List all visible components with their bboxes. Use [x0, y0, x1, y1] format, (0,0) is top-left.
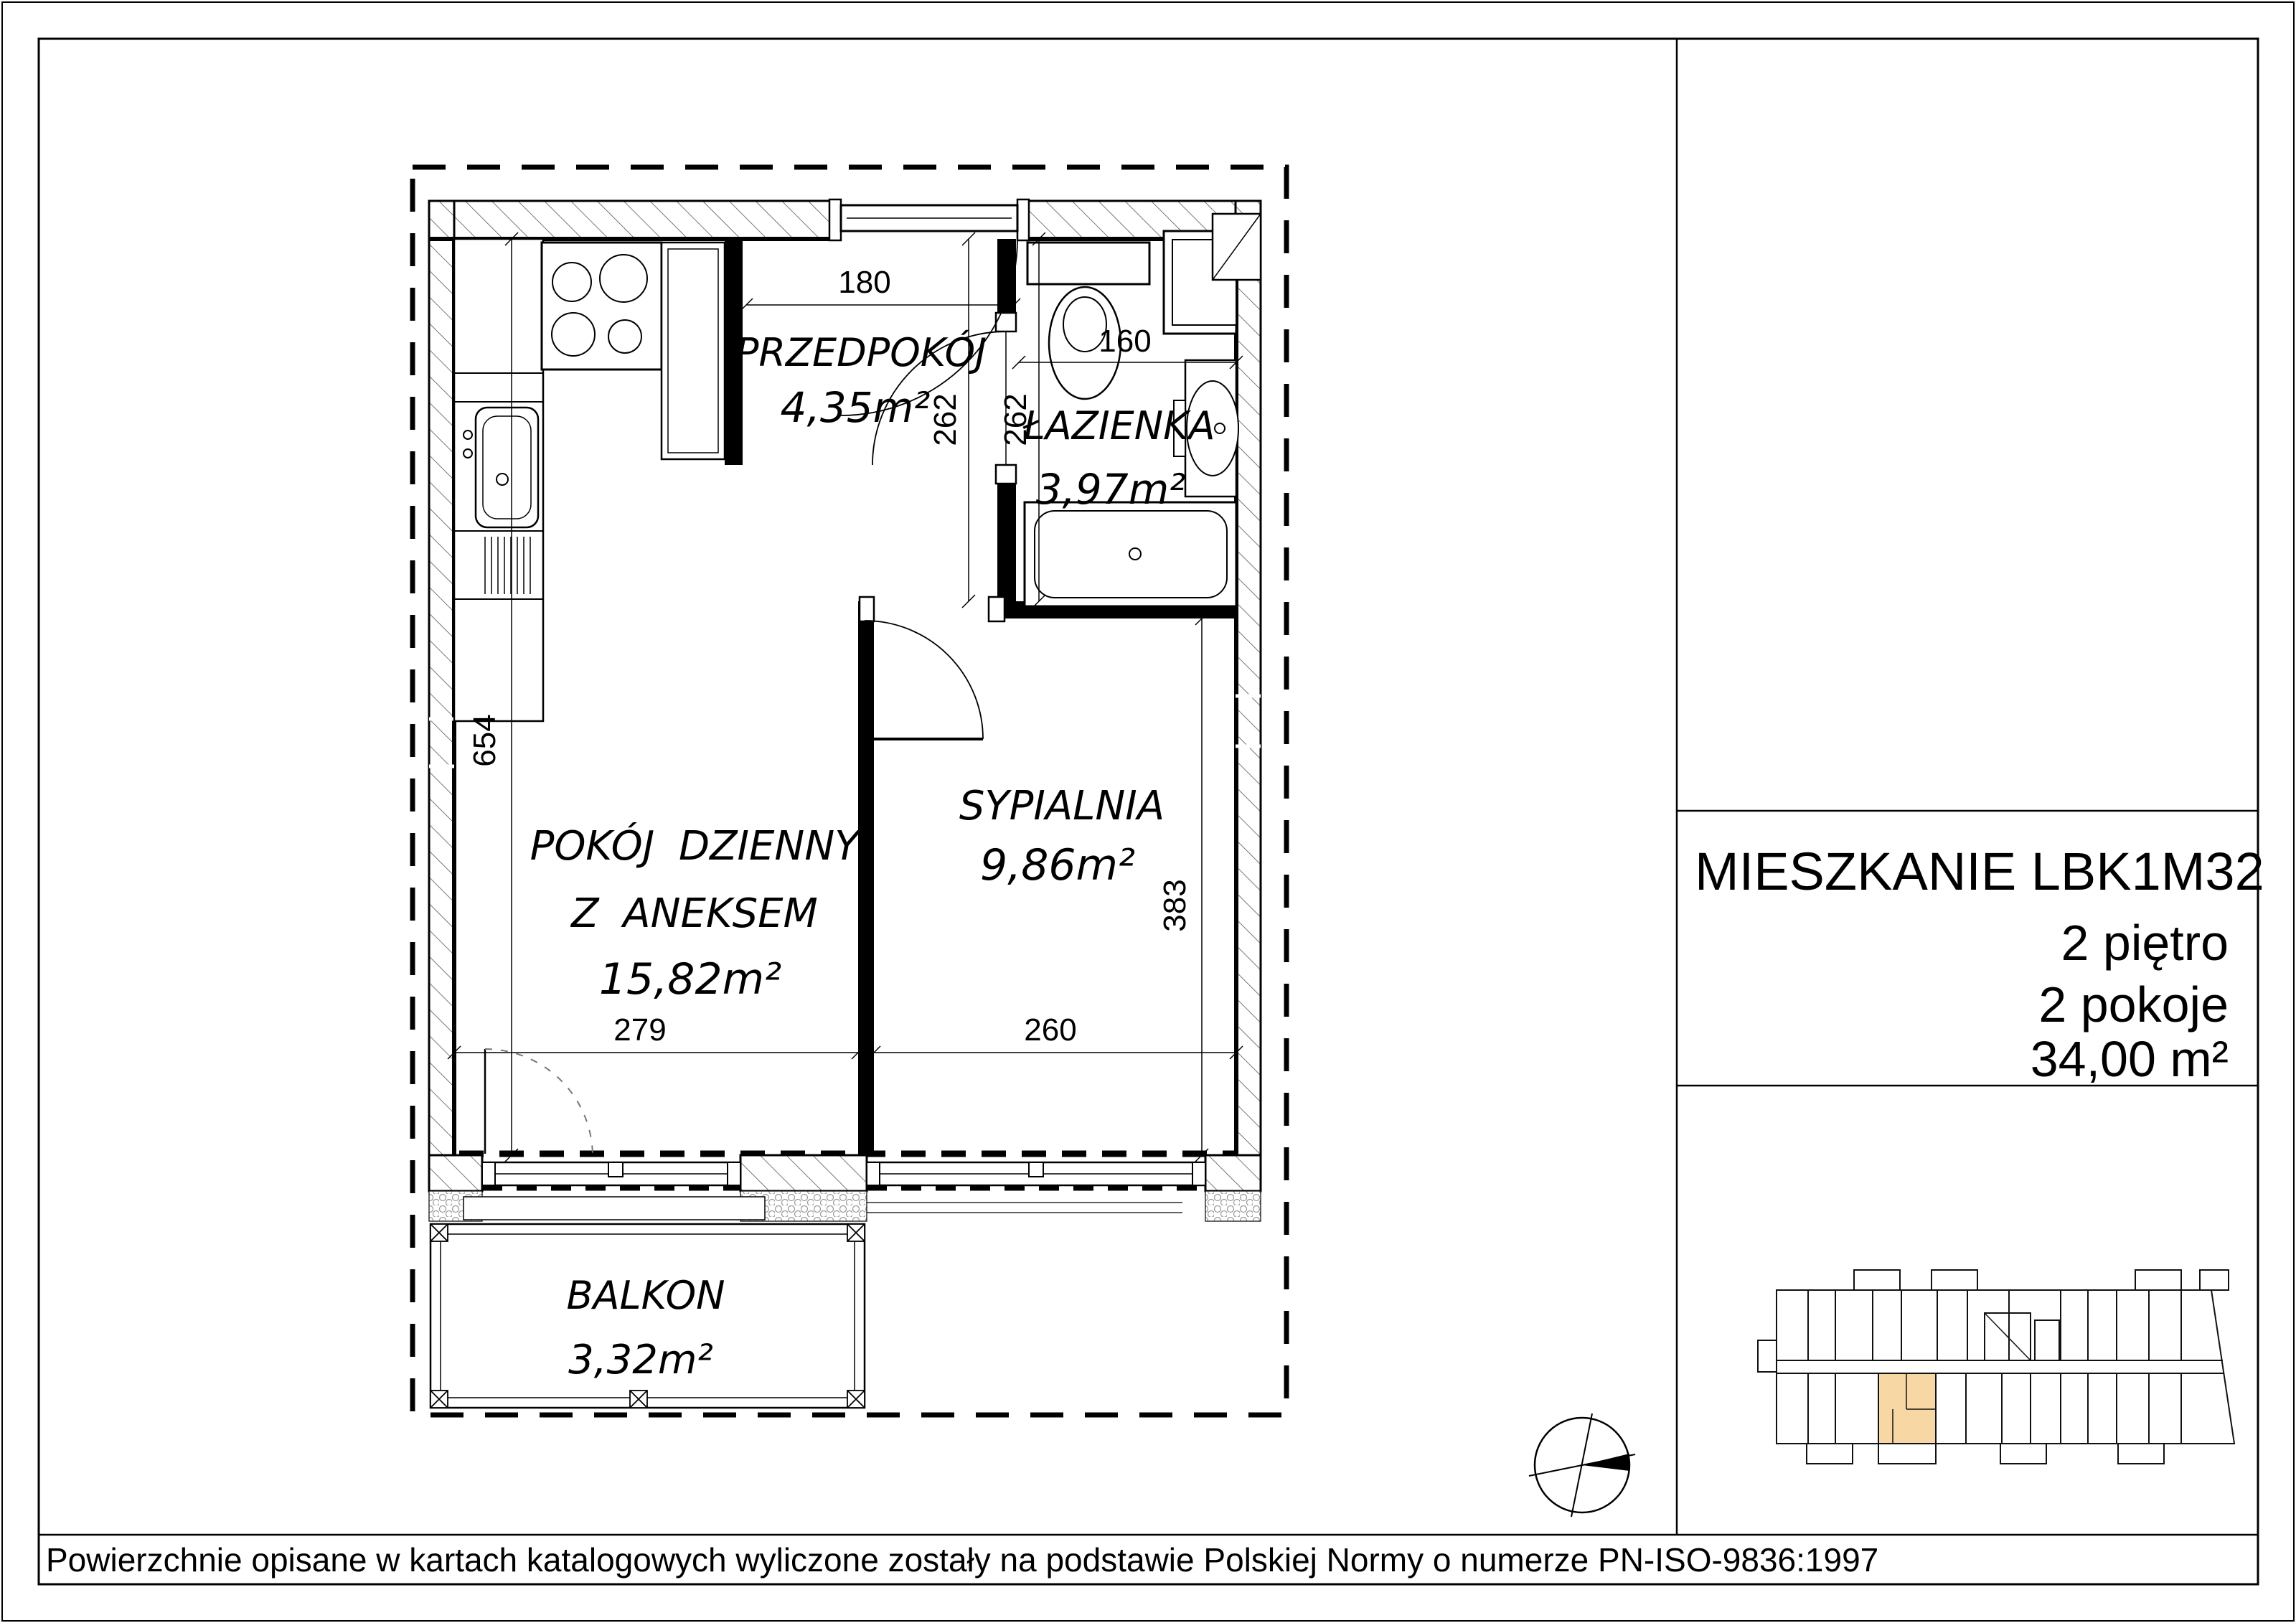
- dim-label-383: 383: [1157, 879, 1192, 931]
- apartment-rooms-count: 2 pokoje: [2038, 977, 2229, 1032]
- balcony-slab-edge: [464, 1197, 765, 1220]
- wall-bottom-pier-left: [429, 1155, 482, 1191]
- highlighted-unit: [1878, 1373, 1936, 1444]
- room-label-bedroom: SYPIALNIA: [959, 783, 1165, 829]
- window-living-balcony-door: [482, 1162, 740, 1185]
- room-area-living: 15,82m²: [599, 954, 781, 1005]
- room-area-bathroom: 3,97m²: [1036, 465, 1186, 514]
- wall-bottom-pier-right: [1205, 1155, 1261, 1191]
- room-label-hallway: PRZEDPOKÓJ: [735, 330, 987, 375]
- room-area-balcony: 3,32m²: [568, 1337, 713, 1383]
- dim-label-260: 260: [1024, 1012, 1076, 1048]
- room-label-living-2: Z ANEKSEM: [570, 890, 818, 937]
- window-bedroom: [867, 1162, 1205, 1185]
- duct-shaft: [1213, 214, 1261, 280]
- apartment-card-page: 180 160 262 262 654 383 279 260 PRZEDPOK…: [0, 0, 2296, 1623]
- apartment-total-area: 34,00 m²: [2031, 1031, 2229, 1087]
- room-label-bathroom: ŁAZIENKA: [1022, 403, 1215, 448]
- stove-icon: [542, 243, 662, 370]
- apartment-floor: 2 piętro: [2061, 915, 2229, 971]
- apartment-title: MIESZKANIE LBK1M32: [1695, 842, 2264, 901]
- room-area-hallway: 4,35m²: [781, 383, 931, 432]
- dim-label-180: 180: [838, 265, 890, 300]
- wall-top-left-segment: [429, 201, 831, 239]
- dim-label-262-hall: 262: [928, 393, 963, 446]
- wall-hall-bath-lower: [997, 484, 1016, 601]
- dim-label-654: 654: [467, 714, 502, 766]
- wall-living-bedroom: [858, 618, 874, 1155]
- dim-label-279: 279: [613, 1012, 666, 1048]
- wall-left: [429, 201, 454, 1191]
- footer-note: Powierzchnie opisane w kartach katalogow…: [46, 1541, 1878, 1579]
- dim-label-160: 160: [1098, 324, 1151, 359]
- wall-bottom-pier-middle: [740, 1155, 867, 1191]
- room-label-living-1: POKÓJ DZIENNY: [530, 823, 862, 870]
- room-area-bedroom: 9,86m²: [980, 840, 1135, 890]
- room-label-balcony: BALKON: [567, 1273, 725, 1318]
- tall-cabinet: [662, 243, 725, 459]
- footer-bar: Powierzchnie opisane w kartach katalogow…: [46, 1541, 1878, 1579]
- bathtub-icon: [1025, 502, 1236, 606]
